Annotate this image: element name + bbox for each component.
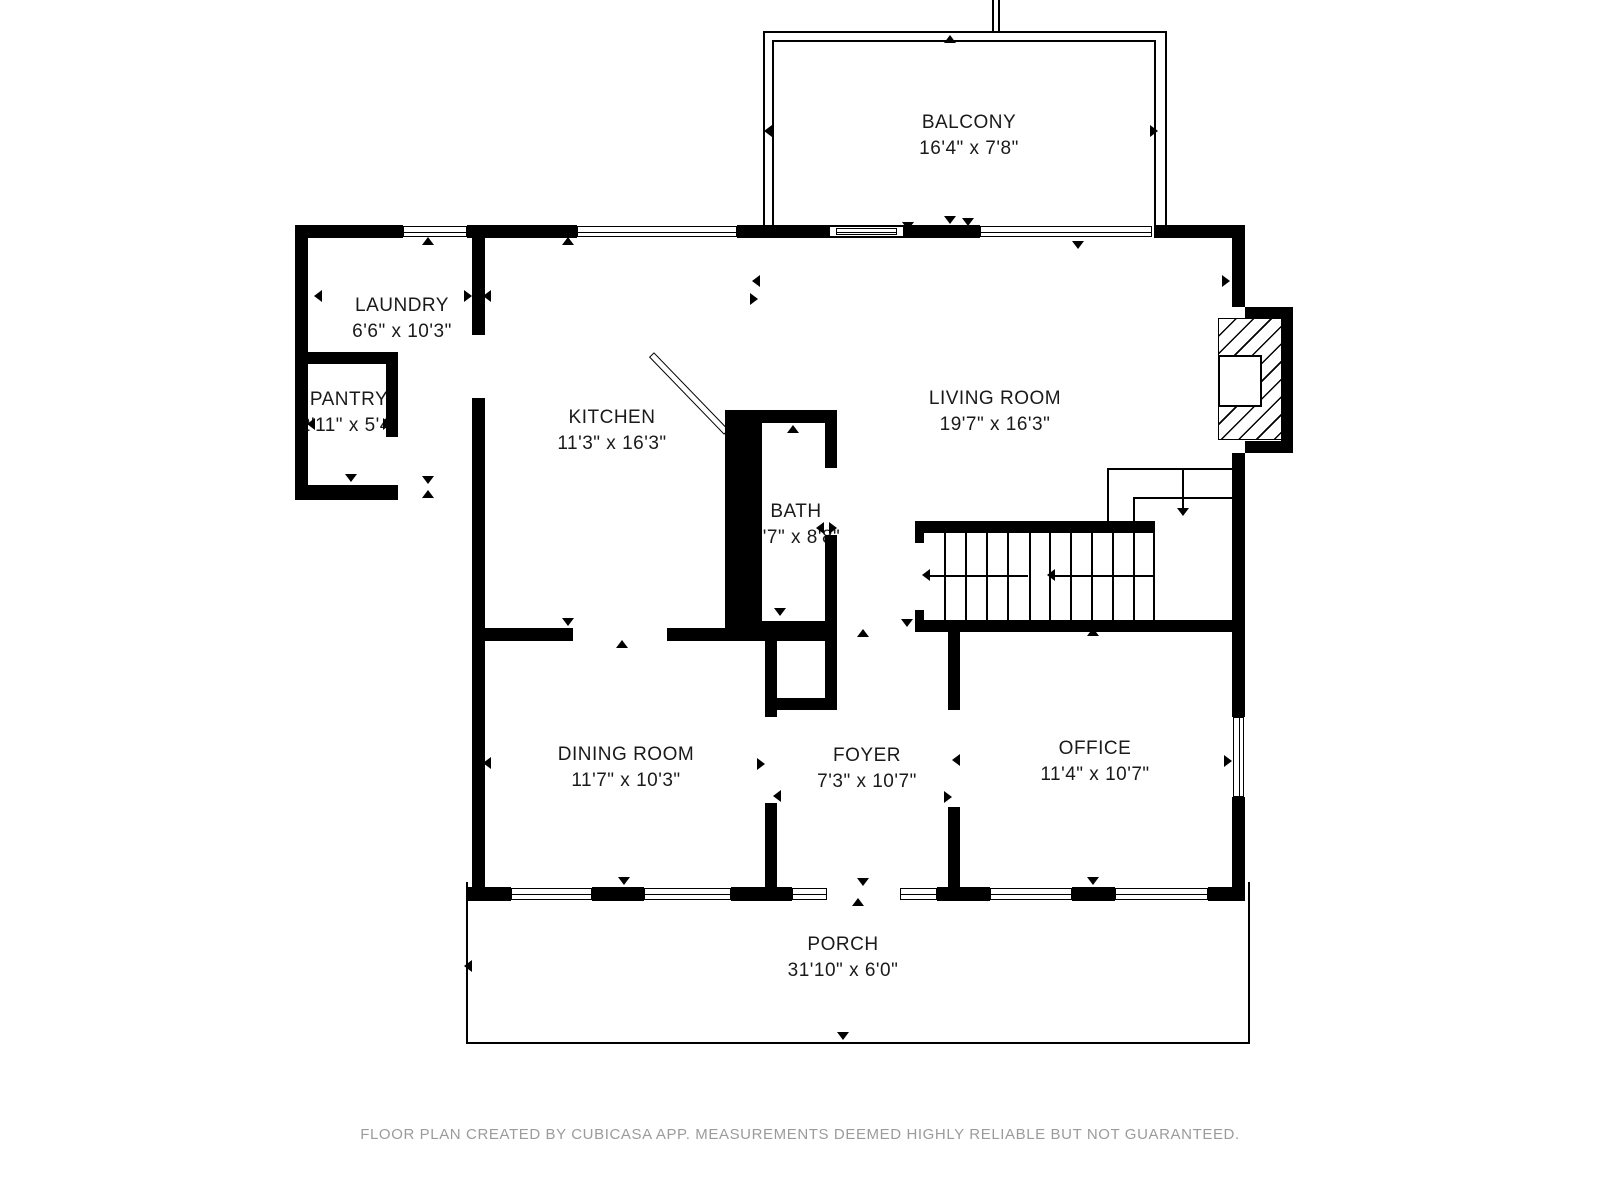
measure-arrow-down: [422, 476, 434, 484]
plan-line: [1053, 575, 1153, 577]
room-label-kitchen: KITCHEN 11'3" x 16'3": [557, 405, 666, 457]
room-label-foyer: FOYER 7'3" x 10'7": [817, 743, 917, 795]
measure-arrow-down: [1087, 877, 1099, 885]
wall-segment: [592, 887, 644, 901]
wall-segment: [725, 410, 837, 423]
wall-segment: [1245, 441, 1293, 453]
wall-segment: [725, 410, 762, 633]
window: [900, 888, 937, 900]
measure-arrow-down: [1177, 508, 1189, 516]
wall-segment: [915, 620, 1245, 632]
measure-arrow-up: [422, 490, 434, 498]
fireplace-firebox: [1218, 355, 1262, 407]
window: [836, 228, 897, 235]
wall-segment: [915, 610, 924, 620]
room-name: LIVING ROOM: [929, 386, 1061, 412]
window: [792, 888, 827, 900]
measure-arrow-up: [852, 898, 864, 906]
measure-arrow-right: [383, 418, 391, 430]
room-label-living-room: LIVING ROOM 19'7" x 16'3": [929, 386, 1061, 438]
footer-disclaimer: FLOOR PLAN CREATED BY CUBICASA APP. MEAS…: [0, 1126, 1600, 1143]
room-name: BATH: [752, 499, 841, 525]
window: [644, 888, 731, 900]
plan-line: [992, 0, 994, 31]
plan-line: [928, 575, 1028, 577]
wall-segment: [725, 621, 837, 641]
floor-plan-page: BALCONY 16'4" x 7'8" LAUNDRY 6'6" x 10'3…: [0, 0, 1600, 1200]
measure-arrow-right: [944, 791, 952, 803]
measure-arrow-right: [1222, 275, 1230, 287]
wall-segment: [731, 887, 792, 901]
wall-segment: [915, 521, 1153, 533]
wall-segment: [1232, 238, 1245, 307]
plan-line: [830, 236, 903, 238]
wall-segment: [667, 628, 725, 641]
window: [990, 888, 1072, 900]
window: [1233, 717, 1244, 797]
room-label-porch: PORCH 31'10" x 6'0": [788, 932, 899, 984]
measure-arrow-down: [901, 619, 913, 627]
window: [1115, 888, 1208, 900]
room-dims: 16'4" x 7'8": [919, 136, 1019, 162]
measure-arrow-right: [829, 522, 837, 534]
measure-arrow-right: [1224, 755, 1232, 767]
room-dims: 11'3" x 16'3": [557, 431, 666, 457]
measure-arrow-left: [1047, 569, 1055, 581]
wall-segment: [295, 225, 403, 238]
measure-arrow-left: [922, 569, 930, 581]
measure-arrow-up: [616, 640, 628, 648]
plan-line: [763, 31, 1167, 33]
measure-arrow-up: [422, 237, 434, 245]
measure-arrow-down: [562, 618, 574, 626]
measure-arrow-down: [962, 218, 974, 226]
measure-arrow-left: [483, 290, 491, 302]
measure-arrow-down: [902, 222, 914, 230]
wall-segment: [765, 632, 777, 717]
plan-line: [1107, 468, 1233, 470]
measure-arrow-left: [314, 290, 322, 302]
wall-segment: [1232, 453, 1245, 717]
room-dims: 11'7" x 10'3": [558, 768, 694, 794]
room-name: LAUNDRY: [352, 293, 452, 319]
room-label-dining-room: DINING ROOM 11'7" x 10'3": [558, 742, 694, 794]
measure-arrow-up: [944, 35, 956, 43]
measure-arrow-down: [618, 877, 630, 885]
measure-arrow-down: [837, 1032, 849, 1040]
room-label-balcony: BALCONY 16'4" x 7'8": [919, 110, 1019, 162]
wall-segment: [737, 225, 830, 238]
measure-arrow-left: [483, 757, 491, 769]
wall-segment: [472, 628, 573, 641]
measure-arrow-left: [952, 754, 960, 766]
plan-line: [1133, 497, 1135, 523]
plan-line: [1165, 31, 1167, 238]
wall-segment: [825, 423, 837, 468]
measure-arrow-down: [857, 878, 869, 886]
measure-arrow-up: [787, 425, 799, 433]
measure-arrow-up: [347, 354, 359, 362]
room-name: KITCHEN: [557, 405, 666, 431]
room-name: BALCONY: [919, 110, 1019, 136]
measure-arrow-left: [307, 418, 315, 430]
room-label-pantry: PANTRY 2'11" x 5'4": [300, 387, 398, 439]
wall-segment: [1232, 797, 1245, 887]
wall-segment: [467, 887, 511, 901]
measure-arrow-down: [789, 622, 801, 630]
room-name: DINING ROOM: [558, 742, 694, 768]
wall-segment: [1281, 307, 1293, 453]
room-name: OFFICE: [1040, 736, 1149, 762]
plan-line: [998, 0, 1000, 31]
plan-line: [1154, 40, 1156, 238]
measure-arrow-up: [562, 237, 574, 245]
room-dims: 19'7" x 16'3": [929, 412, 1061, 438]
window: [511, 888, 592, 900]
wall-segment: [1072, 887, 1115, 901]
wall-segment: [1155, 225, 1245, 238]
room-dims: 31'10" x 6'0": [788, 958, 899, 984]
window: [403, 226, 467, 237]
plan-line: [772, 40, 1156, 42]
measure-arrow-left: [773, 790, 781, 802]
wall-segment: [937, 887, 990, 901]
measure-arrow-right: [750, 293, 758, 305]
room-name: PANTRY: [300, 387, 398, 413]
wall-segment: [295, 485, 398, 500]
measure-arrow-left: [764, 125, 772, 137]
wall-segment: [472, 225, 485, 335]
plan-line: [466, 1042, 1250, 1044]
measure-arrow-down: [345, 474, 357, 482]
measure-arrow-right: [757, 758, 765, 770]
wall-segment: [472, 398, 485, 890]
wall-segment: [825, 535, 837, 621]
wall-segment: [915, 533, 924, 543]
plan-line: [1107, 468, 1109, 523]
room-dims: 6'6" x 10'3": [352, 319, 452, 345]
window: [577, 226, 737, 237]
wall-segment: [903, 225, 980, 238]
floor-plan: BALCONY 16'4" x 7'8" LAUNDRY 6'6" x 10'3…: [0, 0, 1600, 1200]
wall-segment: [765, 803, 777, 901]
plan-line: [1182, 470, 1184, 510]
wall-segment: [1208, 887, 1245, 901]
measure-arrow-right: [1150, 125, 1158, 137]
plan-line: [1029, 533, 1031, 620]
measure-arrow-left: [752, 275, 760, 287]
plan-line: [830, 225, 903, 227]
measure-arrow-down: [944, 216, 956, 224]
measure-arrow-down: [774, 608, 786, 616]
room-dims: 7'3" x 10'7": [817, 769, 917, 795]
measure-arrow-left: [464, 960, 472, 972]
wall-segment: [948, 807, 960, 901]
room-name: FOYER: [817, 743, 917, 769]
room-dims: 11'4" x 10'7": [1040, 762, 1149, 788]
room-label-office: OFFICE 11'4" x 10'7": [1040, 736, 1149, 788]
room-name: PORCH: [788, 932, 899, 958]
plan-line: [772, 40, 774, 238]
measure-arrow-up: [1087, 628, 1099, 636]
plan-line: [1248, 882, 1250, 1044]
room-label-laundry: LAUNDRY 6'6" x 10'3": [352, 293, 452, 345]
plan-line: [1153, 521, 1155, 620]
measure-arrow-left: [816, 522, 824, 534]
measure-arrow-down: [1072, 241, 1084, 249]
wall-segment: [948, 628, 960, 710]
window: [980, 226, 1152, 237]
measure-arrow-up: [857, 629, 869, 637]
measure-arrow-right: [464, 290, 472, 302]
